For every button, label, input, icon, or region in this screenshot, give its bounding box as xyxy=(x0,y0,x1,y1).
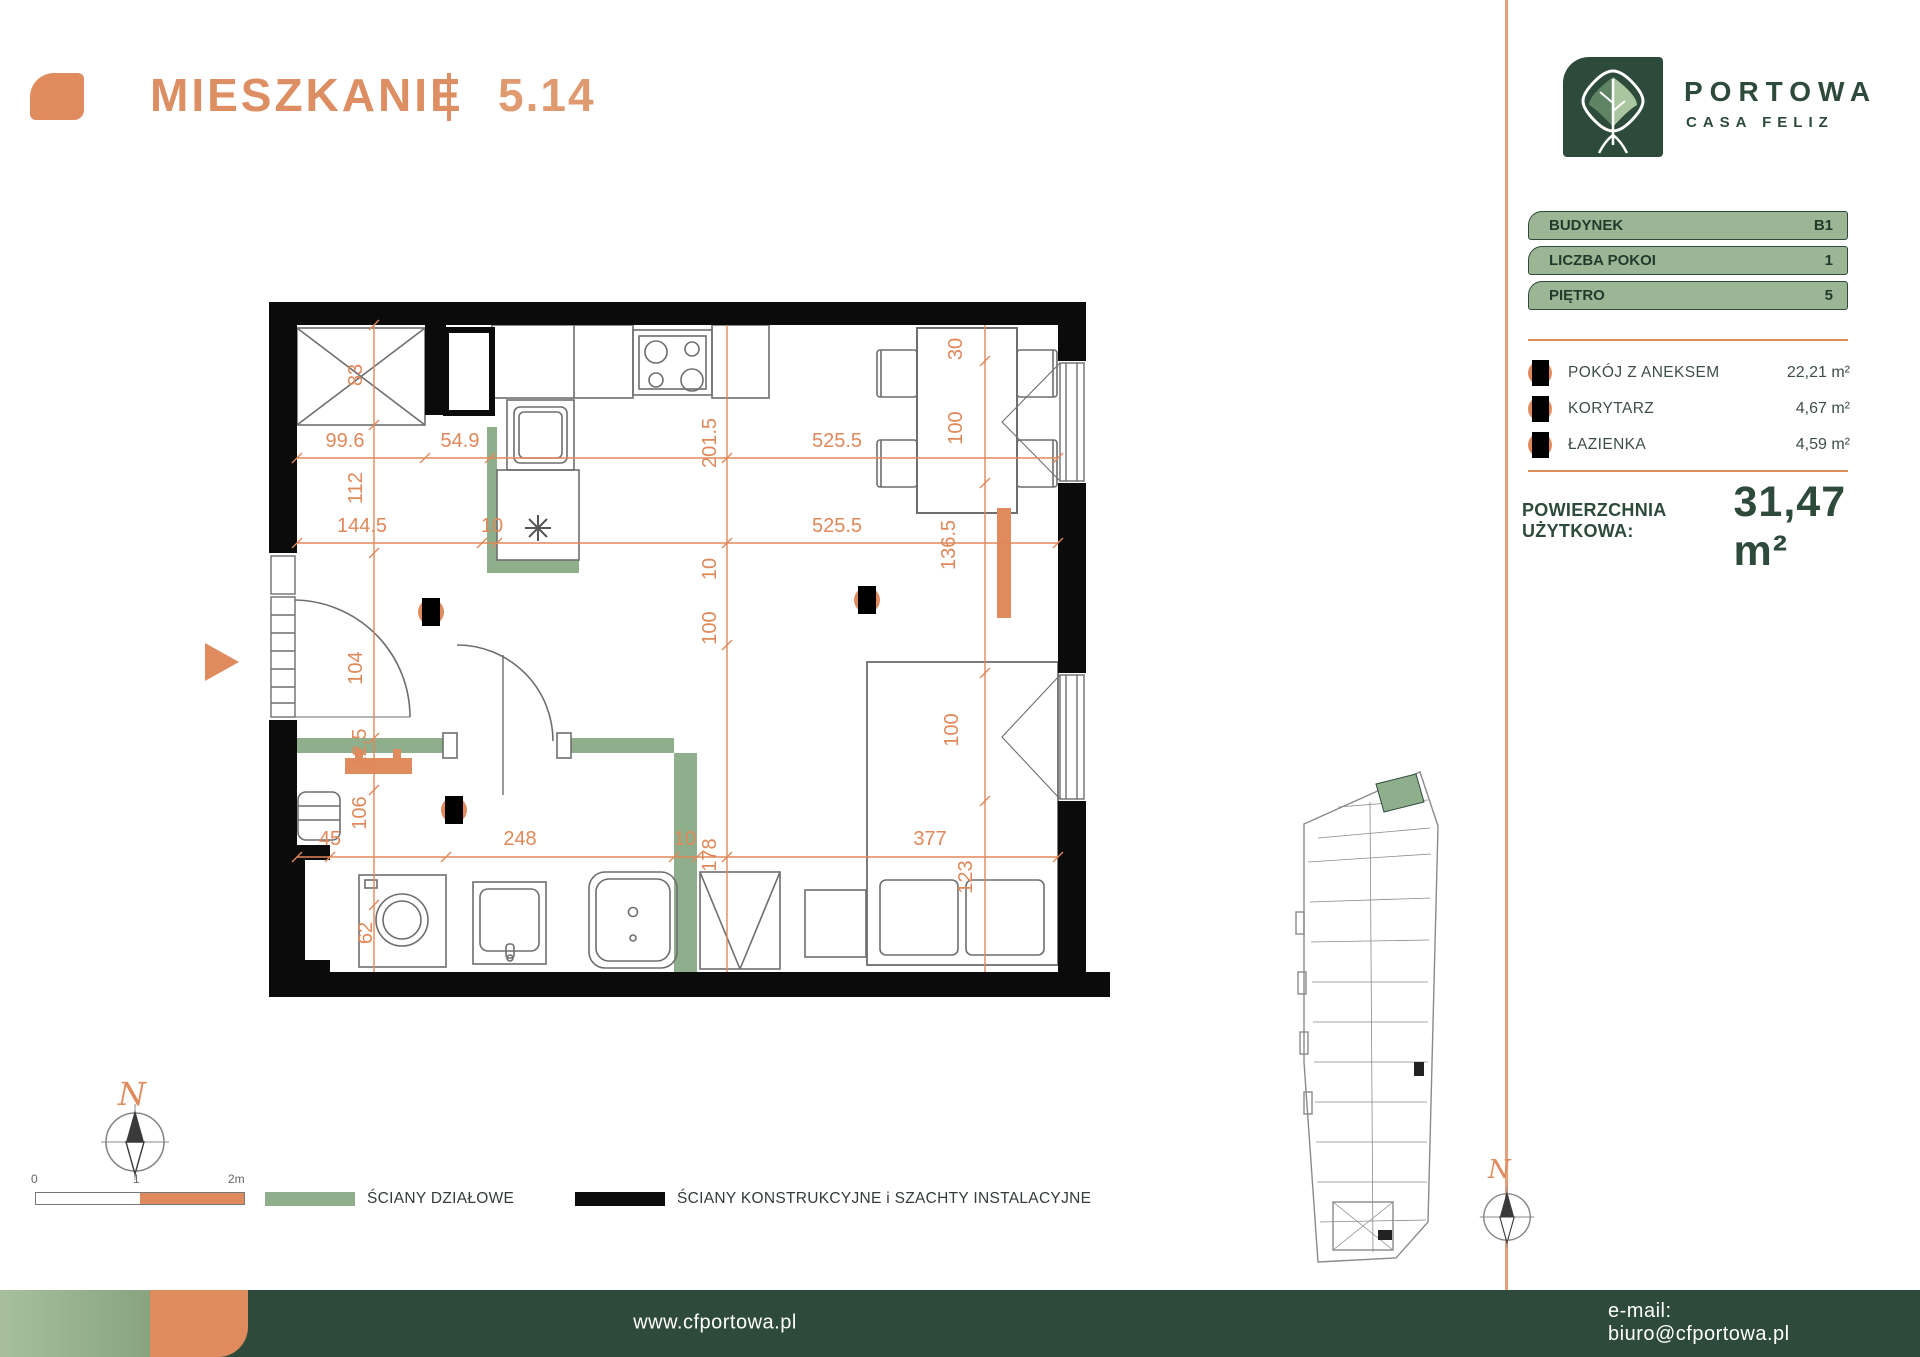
highlighted-unit xyxy=(1376,774,1424,812)
dimension-label: 30 xyxy=(945,338,967,360)
dimension-label: 525.5 xyxy=(812,430,862,452)
dimension-label: 178 xyxy=(699,838,721,871)
brand-name: PORTOWA xyxy=(1684,76,1877,108)
page-title: MIESZKANIE xyxy=(150,68,464,122)
divider xyxy=(1528,470,1848,472)
dimension-label: 525.5 xyxy=(812,515,862,537)
dimension-label: 10 xyxy=(674,828,696,850)
info-value: 1 xyxy=(1825,252,1833,269)
compass-rose-icon xyxy=(95,1102,175,1182)
room-number-marker xyxy=(422,598,440,626)
total-area-value: 31,47 m² xyxy=(1734,478,1874,576)
brand-subtitle: CASA FELIZ xyxy=(1686,114,1834,131)
total-area-label: POWIERZCHNIA UŻYTKOWA: xyxy=(1522,500,1726,542)
wall-niche xyxy=(305,860,330,960)
room-area: 4,67 m² xyxy=(1796,400,1850,418)
dimension-label: 83 xyxy=(345,364,367,386)
dimension-label: 144.5 xyxy=(337,515,387,537)
divider xyxy=(1528,339,1848,341)
room-marker-icon xyxy=(1528,396,1554,422)
brand-logo xyxy=(1563,57,1663,157)
dimension-label: 112 xyxy=(345,472,367,504)
structural-wall-swatch xyxy=(575,1192,665,1206)
compass-north-label: N xyxy=(1488,1155,1511,1185)
installation-shaft xyxy=(446,330,492,413)
dimension-label: 377 xyxy=(913,828,946,850)
scale-tick: 2m xyxy=(228,1172,245,1186)
room-number-marker xyxy=(858,586,876,614)
website-link[interactable]: www.cfportowa.pl xyxy=(633,1312,797,1335)
room-row: POKÓJ Z ANEKSEM 22,21 m² xyxy=(1528,360,1850,386)
dimension-label: 100 xyxy=(945,411,967,444)
room-name: POKÓJ Z ANEKSEM xyxy=(1568,364,1787,382)
footer-green-block xyxy=(0,1290,150,1357)
info-label: PIĘTRO xyxy=(1549,287,1605,304)
room-row: ŁAZIENKA 4,59 m² xyxy=(1528,432,1850,458)
scale-tick: 1 xyxy=(133,1172,140,1186)
dimension-label: 100 xyxy=(699,611,721,644)
corner-accent-icon xyxy=(30,73,84,120)
leaf-logo-icon xyxy=(1563,57,1663,157)
dimension-label: 100 xyxy=(941,713,963,746)
dimension-label: 136.5 xyxy=(938,520,960,570)
legend-label: ŚCIANY DZIAŁOWE xyxy=(367,1190,514,1208)
floor-plan: 8311210412,51066299.654.9525.5144.510525… xyxy=(170,290,1180,1010)
vertical-divider xyxy=(1505,0,1508,1357)
dimension-label: 123 xyxy=(955,860,977,893)
info-row-floor: PIĘTRO 5 xyxy=(1528,281,1848,310)
scale-tick: 0 xyxy=(31,1172,38,1186)
compass-rose-icon xyxy=(1475,1185,1539,1249)
dimension-label: 45 xyxy=(319,828,341,850)
partition-wall-swatch xyxy=(265,1192,355,1206)
room-markers xyxy=(418,586,880,824)
apartment-card-page: MIESZKANIE 5.14 PORTOWA CASA FELIZ BUDYN… xyxy=(0,0,1920,1357)
legend-structural-walls: ŚCIANY KONSTRUKCYJNE i SZACHTY INSTALACY… xyxy=(575,1190,1091,1208)
legend-label: ŚCIANY KONSTRUKCYJNE i SZACHTY INSTALACY… xyxy=(677,1190,1091,1208)
room-area: 4,59 m² xyxy=(1796,436,1850,454)
room-row: KORYTARZ 4,67 m² xyxy=(1528,396,1850,422)
info-row-building: BUDYNEK B1 xyxy=(1528,211,1848,240)
footer: www.cfportowa.pl e-mail: biuro@cfportowa… xyxy=(0,1290,1920,1357)
room-marker-icon xyxy=(1528,432,1554,458)
info-label: LICZBA POKOI xyxy=(1549,252,1656,269)
footer-orange-block xyxy=(150,1290,248,1357)
legend-partition-walls: ŚCIANY DZIAŁOWE xyxy=(265,1190,514,1208)
info-value: 5 xyxy=(1825,287,1833,304)
entrance-arrow-icon xyxy=(205,643,239,681)
room-number-marker xyxy=(445,796,463,824)
building-locator-plan xyxy=(1278,762,1458,1282)
room-area: 22,21 m² xyxy=(1787,364,1850,382)
total-area-line: POWIERZCHNIA UŻYTKOWA: 31,47 m² xyxy=(1522,478,1874,576)
scale-bar xyxy=(35,1192,245,1205)
dimension-label: 62 xyxy=(355,922,377,944)
dimension-label: 99.6 xyxy=(326,430,365,452)
email-link[interactable]: e-mail: biuro@cfportowa.pl xyxy=(1608,1300,1816,1346)
dimension-label: 248 xyxy=(503,828,536,850)
dimension-label: 10 xyxy=(481,515,503,537)
info-row-rooms: LICZBA POKOI 1 xyxy=(1528,246,1848,275)
room-name: ŁAZIENKA xyxy=(1568,436,1796,454)
dimension-label: 201.5 xyxy=(699,418,721,468)
dimension-label: 12,5 xyxy=(349,729,371,768)
info-label: BUDYNEK xyxy=(1549,217,1623,234)
dimension-label: 106 xyxy=(349,796,371,829)
dimension-label: 54.9 xyxy=(441,430,480,452)
dimension-label: 10 xyxy=(699,558,721,580)
title-divider xyxy=(447,73,451,121)
dimension-labels: 8311210412,51066299.654.9525.5144.510525… xyxy=(319,338,977,944)
room-marker-icon xyxy=(1528,360,1554,386)
apartment-number: 5.14 xyxy=(498,68,596,122)
dimension-label: 104 xyxy=(345,651,367,684)
info-value: B1 xyxy=(1814,217,1833,234)
room-name: KORYTARZ xyxy=(1568,400,1796,418)
